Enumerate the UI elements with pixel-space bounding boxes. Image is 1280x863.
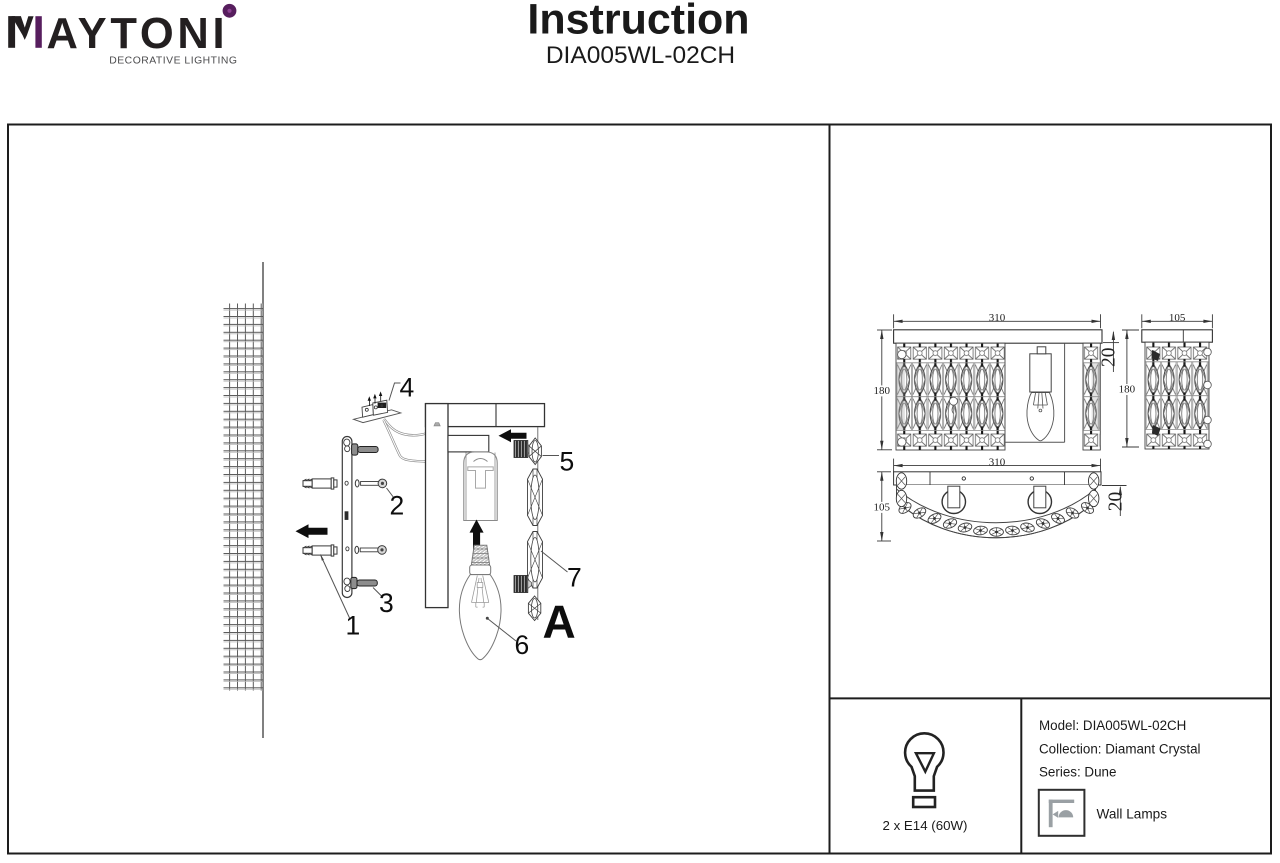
svg-text:7: 7 [567, 563, 582, 593]
svg-text:2: 2 [390, 491, 405, 521]
svg-text:Instruction: Instruction [527, 0, 749, 44]
svg-text:310: 310 [989, 456, 1006, 468]
svg-text:Model: DIA005WL-02CH: Model: DIA005WL-02CH [1039, 718, 1186, 733]
svg-text:DECORATIVE LIGHTING: DECORATIVE LIGHTING [109, 55, 237, 66]
svg-text:Collection: Diamant Crystal: Collection: Diamant Crystal [1039, 742, 1201, 757]
svg-text:3: 3 [379, 588, 394, 618]
svg-text:180: 180 [874, 385, 891, 397]
svg-text:6: 6 [515, 630, 530, 660]
svg-text:A: A [543, 596, 576, 648]
svg-text:1: 1 [346, 611, 361, 641]
svg-text:310: 310 [989, 312, 1006, 324]
svg-text:4: 4 [400, 373, 415, 403]
svg-text:DIA005WL-02CH: DIA005WL-02CH [546, 42, 735, 69]
svg-text:Wall Lamps: Wall Lamps [1097, 807, 1168, 822]
svg-text:180: 180 [1119, 384, 1136, 396]
svg-text:20: 20 [1106, 492, 1127, 512]
svg-text:105: 105 [874, 501, 891, 513]
svg-text:105: 105 [1169, 312, 1186, 324]
svg-text:2 x E14 (60W): 2 x E14 (60W) [883, 818, 968, 833]
svg-text:5: 5 [560, 447, 575, 477]
svg-text:AYTONI: AYTONI [47, 10, 229, 58]
svg-text:Series: Dune: Series: Dune [1039, 765, 1116, 780]
svg-text:20: 20 [1099, 348, 1120, 368]
